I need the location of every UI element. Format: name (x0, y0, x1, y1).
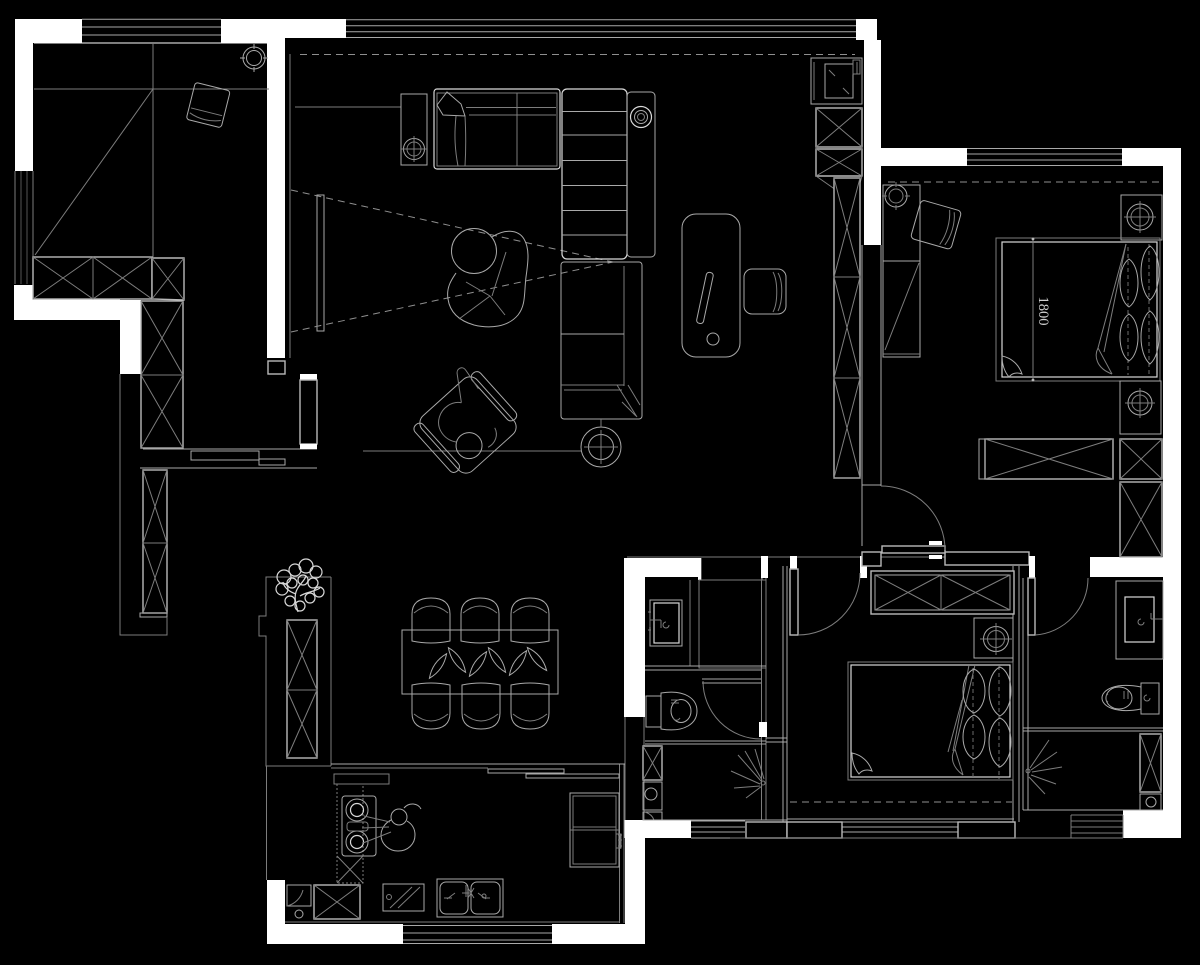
svg-text:1800: 1800 (1035, 297, 1051, 326)
